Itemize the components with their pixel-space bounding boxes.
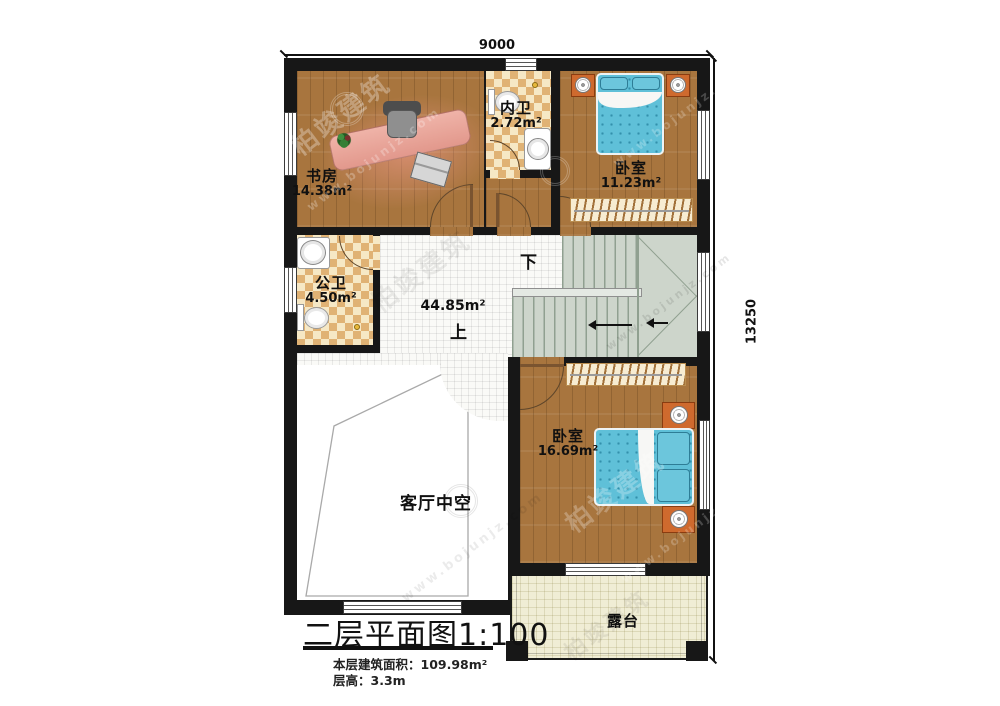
door-knob xyxy=(532,82,538,88)
room-label-living-void: 客厅中空 xyxy=(372,495,500,515)
window xyxy=(699,420,710,510)
stairs-up-label: 上 xyxy=(450,318,467,343)
sliding-door xyxy=(565,563,646,576)
stairs-down-label: 下 xyxy=(520,248,537,273)
room-label-bedroom2: 卧室16.69m² xyxy=(518,428,618,460)
wardrobe-rail xyxy=(570,374,682,376)
plant-icon xyxy=(334,130,354,150)
plan-note-height: 层高：3.3m xyxy=(333,670,406,689)
stairs-handrail xyxy=(512,288,642,297)
pillow xyxy=(657,432,690,465)
stairs-landing-divider xyxy=(637,235,639,357)
window xyxy=(697,252,710,332)
plan-title-underline xyxy=(303,646,493,650)
terrace-post xyxy=(686,641,708,661)
room-hall-strip xyxy=(297,353,440,365)
pillow xyxy=(600,77,628,90)
toilet-bowl-icon xyxy=(304,307,329,329)
door-opening xyxy=(560,227,591,236)
floor-plan: 9000 13250 下 上 xyxy=(0,0,1000,706)
lamp-icon xyxy=(575,77,591,93)
toilet-tank-icon xyxy=(297,304,304,331)
door-leaf xyxy=(496,193,499,227)
window xyxy=(697,110,710,180)
window xyxy=(505,58,537,71)
sink-icon xyxy=(527,138,549,160)
wardrobe xyxy=(570,198,693,222)
wall xyxy=(646,563,710,576)
pillow xyxy=(657,469,690,502)
room-label-inner-bath: 内卫2.72m² xyxy=(468,100,564,132)
dimension-top-value: 9000 xyxy=(467,38,527,53)
stairs-landing xyxy=(637,235,697,357)
pillow xyxy=(632,77,660,90)
door-opening xyxy=(430,227,473,236)
door-knob xyxy=(354,324,360,330)
stairs-upper-flight xyxy=(562,235,637,289)
lamp-icon xyxy=(670,406,688,424)
lamp-icon xyxy=(670,510,688,528)
dimension-right-line xyxy=(713,58,715,661)
door-opening xyxy=(497,227,531,236)
wall xyxy=(508,563,565,576)
lamp-icon xyxy=(670,77,686,93)
office-chair-icon xyxy=(387,110,417,138)
dimension-top-line xyxy=(284,54,710,56)
stair-arrow-line xyxy=(592,324,632,326)
wardrobe xyxy=(566,363,686,386)
wardrobe-rail xyxy=(574,210,689,212)
dimension-right-value: 13250 xyxy=(745,292,760,352)
room-label-public-bath: 公卫4.50m² xyxy=(283,275,379,307)
door-leaf xyxy=(520,364,564,367)
stair-arrow-head xyxy=(583,320,596,330)
room-label-study: 书房14.38m² xyxy=(272,168,372,200)
stair-arrow-head xyxy=(641,318,654,328)
window xyxy=(284,112,297,176)
room-label-bedroom1: 卧室11.23m² xyxy=(581,160,681,192)
stairs-lower-flight xyxy=(512,297,637,357)
sink-icon xyxy=(300,240,326,265)
room-label-hall-area: 44.85m² xyxy=(405,298,501,314)
room-label-terrace: 露台 xyxy=(588,613,658,630)
door-opening xyxy=(373,236,380,270)
